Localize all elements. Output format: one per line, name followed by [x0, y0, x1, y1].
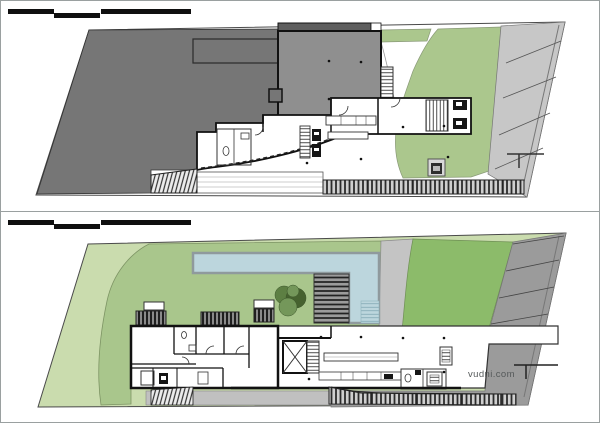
pool-deck-stairs	[314, 274, 349, 323]
lawn-patch	[380, 29, 431, 42]
grill	[440, 347, 452, 365]
interior-stair	[300, 126, 310, 158]
roof-notch	[269, 89, 282, 102]
watermark: vudni.com	[468, 369, 515, 380]
floor-plan-canvas: vudni.com	[1, 1, 600, 423]
pool-steps	[361, 301, 379, 323]
parking-area	[488, 22, 565, 197]
terrace-counter	[324, 353, 398, 361]
stair-ramp	[151, 387, 193, 405]
upper-level-plan	[8, 9, 565, 197]
stairwell	[307, 341, 319, 373]
scale-bar	[8, 220, 191, 229]
drawing-sheet: vudni.com	[0, 0, 600, 423]
scale-bar	[8, 9, 191, 18]
sauna-fixtures	[159, 373, 168, 384]
fence	[323, 180, 524, 194]
deck	[197, 172, 323, 193]
elevator	[283, 341, 307, 373]
utility-pad	[428, 159, 445, 176]
lower-level-plan: vudni.com	[8, 220, 566, 407]
